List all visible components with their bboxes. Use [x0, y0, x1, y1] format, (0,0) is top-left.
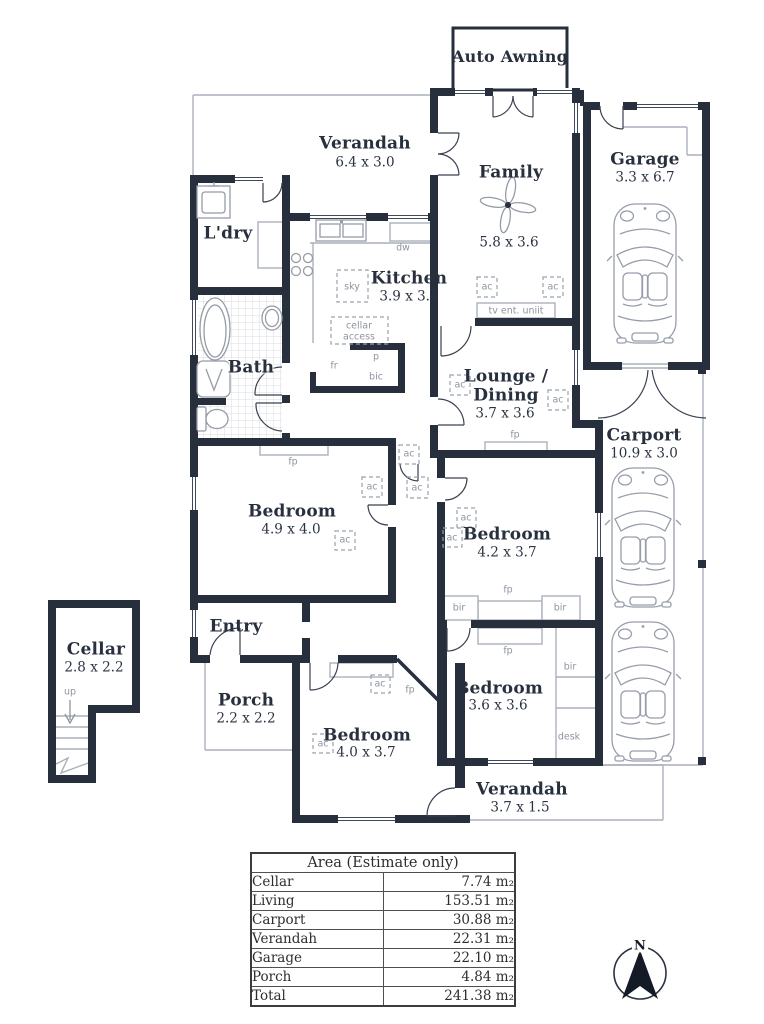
cellar-access-label-2: access	[343, 332, 375, 342]
ac-label-lounge-1: ac	[454, 380, 465, 390]
fp-label-bedroom-main: fp	[288, 457, 297, 467]
carport-label: Carport	[607, 428, 682, 445]
bedroom-2-dim: 4.2 x 3.7	[477, 546, 536, 560]
bedroom-main-dim: 4.9 x 4.0	[261, 523, 320, 537]
area-row-value: 30.88 m₂	[383, 911, 515, 930]
area-row-value: 7.74 m₂	[383, 873, 515, 892]
bedroom-4-label: Bedroom	[455, 681, 543, 698]
ac-label-bedroom-2-2: ac	[446, 533, 457, 543]
cellar-dim: 2.8 x 2.2	[64, 661, 123, 675]
table-row: Living 153.51 m₂	[251, 892, 515, 911]
ac-label-hall-2: ac	[411, 483, 422, 493]
area-row-value: 22.10 m₂	[383, 949, 515, 968]
compass-icon	[614, 947, 666, 999]
stairs-arrow	[65, 700, 75, 723]
garage-dim: 3.3 x 6.7	[615, 171, 674, 185]
sky-label: sky	[344, 282, 360, 292]
bedroom-2-label: Bedroom	[463, 527, 551, 544]
area-row-value: 153.51 m₂	[383, 892, 515, 911]
fp-label-lounge: fp	[510, 430, 519, 440]
bedroom-3-label: Bedroom	[323, 728, 411, 745]
thin-outlines	[50, 95, 703, 820]
area-row-label: Porch	[251, 968, 383, 987]
car-garage-icon	[607, 204, 683, 343]
verandah-bottom-dim: 3.7 x 1.5	[490, 801, 549, 815]
porch-dim: 2.2 x 2.2	[216, 712, 275, 726]
area-row-label: Verandah	[251, 930, 383, 949]
ac-label-hall-1: ac	[403, 449, 414, 459]
up-label: up	[64, 687, 76, 697]
angled-wall	[397, 659, 443, 705]
bic-label: bic	[369, 372, 383, 382]
table-row: Cellar 7.74 m₂	[251, 873, 515, 892]
kitchen-label: Kitchen	[371, 271, 447, 288]
area-table-title: Area (Estimate only)	[251, 853, 515, 873]
lounge-dining-label-1: Lounge /	[464, 369, 548, 386]
compass-north-label: N	[632, 940, 648, 953]
car-carport-2-icon	[605, 622, 681, 761]
dw-label: dw	[396, 243, 410, 253]
bath-label: Bath	[228, 360, 274, 377]
entry-label: Entry	[209, 619, 262, 636]
table-row: Garage 22.10 m₂	[251, 949, 515, 968]
fridge-label: fr	[330, 361, 337, 371]
area-row-label: Garage	[251, 949, 383, 968]
tv-unit-label: tv ent. uniit	[488, 306, 543, 316]
ac-label-bedroom-main-1: ac	[366, 482, 377, 492]
carport-dim: 10.9 x 3.0	[610, 447, 678, 461]
bir-label-left: bir	[453, 603, 466, 613]
bir-label-right: bir	[554, 603, 567, 613]
verandah-top-dim: 6.4 x 3.0	[335, 156, 394, 170]
lounge-dining-dim: 3.7 x 3.6	[475, 407, 534, 421]
area-row-label: Carport	[251, 911, 383, 930]
area-row-label: Total	[251, 987, 383, 1007]
ac-label-family-2: ac	[547, 282, 558, 292]
cellar-label: Cellar	[67, 642, 125, 659]
bedroom-main-label: Bedroom	[248, 504, 336, 521]
table-row: Verandah 22.31 m₂	[251, 930, 515, 949]
family-label: Family	[479, 165, 543, 182]
area-row-label: Cellar	[251, 873, 383, 892]
table-row: Total 241.38 m₂	[251, 987, 515, 1007]
bir-label-bedroom-4: bir	[564, 662, 577, 672]
cellar-access-label-1: cellar	[346, 321, 372, 331]
laundry-label: L'dry	[204, 226, 253, 243]
area-table: Area (Estimate only) Cellar 7.74 m₂ Livi…	[250, 852, 516, 1007]
verandah-bottom-label: Verandah	[476, 782, 568, 799]
ac-label-family-1: ac	[481, 282, 492, 292]
desk-label: desk	[558, 732, 580, 742]
verandah-top-label: Verandah	[319, 136, 411, 153]
table-row: Carport 30.88 m₂	[251, 911, 515, 930]
ac-label-lounge-2: ac	[552, 395, 563, 405]
auto-awning-label: Auto Awning	[452, 49, 568, 65]
fp-label-bedroom-2: fp	[503, 585, 512, 595]
bedroom-3-dim: 4.0 x 3.7	[336, 746, 395, 760]
pantry-label: p	[373, 352, 379, 362]
area-row-label: Living	[251, 892, 383, 911]
ac-label-bedroom-main-2: ac	[339, 535, 350, 545]
kitchen-dim: 3.9 x 3.4	[379, 290, 438, 304]
table-row: Porch 4.84 m₂	[251, 968, 515, 987]
fp-label-bedroom-4: fp	[503, 646, 512, 656]
ac-label-bedroom-3-2: ac	[317, 739, 328, 749]
ac-label-bedroom-2-1: ac	[460, 513, 471, 523]
family-dim: 5.8 x 3.6	[479, 236, 538, 250]
lounge-dining-label-2: Dining	[473, 388, 538, 405]
bedroom-4-dim: 3.6 x 3.6	[468, 699, 527, 713]
floorplan-page: Auto Awning Verandah 6.4 x 3.0 Family 5.…	[0, 0, 764, 1024]
area-row-value: 241.38 m₂	[383, 987, 515, 1007]
area-row-value: 22.31 m₂	[383, 930, 515, 949]
area-row-value: 4.84 m₂	[383, 968, 515, 987]
garage-label: Garage	[610, 152, 679, 169]
car-carport-1-icon	[605, 468, 681, 607]
ac-label-bedroom-3-1: ac	[374, 679, 385, 689]
fp-label-bedroom-3: fp	[405, 685, 414, 695]
porch-label: Porch	[218, 693, 274, 710]
